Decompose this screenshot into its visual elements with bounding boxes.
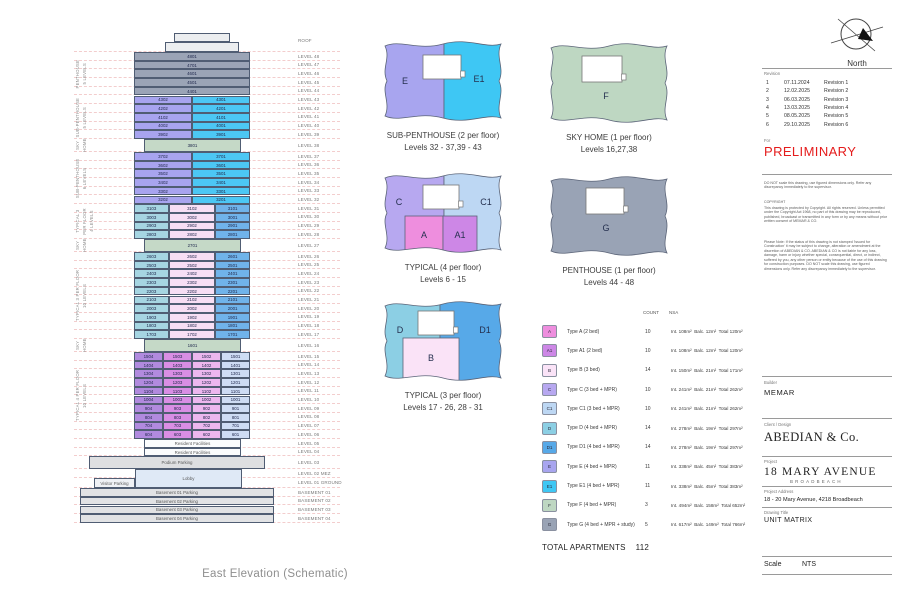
level-label: LEVEL 17: [298, 332, 319, 337]
unit-box: 3003: [134, 213, 169, 222]
section-label-line: 6 LEVELS: [83, 152, 88, 204]
unit-box: 1204: [134, 378, 163, 387]
plan-caption: PENTHOUSE (1 per floor) Levels 44 - 48: [534, 265, 684, 288]
legend-header-nsa: NSA: [669, 310, 678, 315]
level-label: LEVEL 13: [298, 371, 319, 376]
legend-swatch: B: [542, 364, 557, 377]
elevation-row: LEVEL 3232023201: [72, 196, 344, 205]
legend-swatch: C1: [542, 402, 557, 415]
elevation-row: LEVEL 23230323022301: [72, 278, 344, 287]
unit-box: 3501: [192, 169, 250, 178]
section-label-line: 10 LEVELS: [83, 352, 88, 439]
elevation-row: LEVEL 06604603602601: [72, 430, 344, 439]
elevation-row: LEVEL 121204120312021201: [72, 378, 344, 387]
level-label: LEVEL 46: [298, 71, 319, 76]
plan-levels: Levels 32 - 37,39 - 43: [368, 142, 518, 154]
unit-box: 1702: [169, 330, 215, 339]
unit-box: 803: [163, 413, 192, 422]
unit-box: 2103: [134, 296, 169, 305]
unit-type-legend: COUNT NSA AType A (2 bed)10Int. 108m² Ba…: [542, 310, 764, 534]
legend-type-label: Type D (4 bed + MPR): [567, 425, 645, 431]
level-label: LEVEL 31: [298, 206, 319, 211]
elevation-row: LEVEL 161601: [72, 339, 344, 352]
elevation-row: LEVEL 19190319021901: [72, 313, 344, 322]
section-label-line: 5 LEVELS: [83, 52, 88, 96]
section-label-line: SUB-PENTHOUSE: [76, 152, 81, 204]
elevation-row: LEVEL 07704703702701: [72, 422, 344, 431]
level-label: LEVEL 11: [298, 388, 319, 393]
unit-box: 1104: [134, 387, 163, 396]
level-label: LEVEL 36: [298, 162, 319, 167]
unit-box: 2402: [169, 269, 215, 278]
revision-number: 6: [766, 122, 784, 128]
legend-swatch: D: [542, 422, 557, 435]
unit-box: 3101: [215, 204, 250, 213]
level-label: LEVEL 34: [298, 180, 319, 185]
unit-box: 1901: [215, 313, 250, 322]
unit-box: 1201: [221, 378, 250, 387]
unit-box: 2303: [134, 278, 169, 287]
legend-count: 14: [645, 367, 671, 373]
section-label-line: SUB-PENTHOUSE: [76, 96, 81, 140]
elevation-row: LEVEL 3737023701: [72, 152, 344, 161]
level-label: LEVEL 20: [298, 306, 319, 311]
address-label: Project Address: [764, 489, 793, 494]
north-arrow-icon: [828, 14, 886, 56]
legend-nsa: Int. 108m² Balc. 12m² Total 120m²: [671, 348, 743, 353]
scale-label: Scale: [764, 561, 782, 568]
level-label: LEVEL 10: [298, 397, 319, 402]
unit-box: 2603: [134, 252, 169, 261]
section-label-line: SKY: [76, 239, 81, 252]
legend-swatch: G: [542, 518, 557, 531]
legend-count: 11: [645, 464, 671, 470]
note-text: Please Note: If the status of this drawi…: [764, 240, 888, 271]
revision-date: 29.10.2025: [784, 122, 824, 128]
level-label: LEVEL 26: [298, 254, 319, 259]
revision-header: Revision: [764, 71, 780, 76]
unit-box: 3901: [192, 130, 250, 139]
level-label: BASEMENT 04: [298, 516, 331, 521]
level-label: LEVEL 41: [298, 114, 319, 119]
unit-box: Resident Facilities: [144, 448, 241, 457]
unit-box: 802: [192, 413, 221, 422]
legend-row: BType B (3 bed)14Int. 150m² Balc. 21m² T…: [542, 361, 764, 380]
revision-date: 12.02.2025: [784, 88, 824, 94]
revision-row: 212.02.2025Revision 2: [766, 87, 890, 95]
client-value: ABEDIAN & Co.: [764, 430, 859, 445]
unit-box: Basement 02 Parking: [80, 497, 274, 506]
plan-caption: SKY HOME (1 per floor) Levels 16,27,38: [534, 132, 684, 155]
elevation-row: LEVEL 151504150315021501: [72, 352, 344, 361]
unit-box: 3902: [134, 130, 192, 139]
revision-row: 306.03.2025Revision 3: [766, 96, 890, 104]
elevation-row: LEVEL 3636023601: [72, 161, 344, 170]
section-label-line: SKY: [76, 139, 81, 152]
legend-type-label: Type E1 (4 bed + MPR): [567, 483, 645, 489]
core-rect: [418, 311, 454, 335]
legend-type-label: Type F (4 bed + MPR): [567, 502, 645, 508]
section-label-line: HOME: [83, 239, 88, 252]
revision-label: Revision 2: [824, 88, 848, 94]
unit-box: 3401: [192, 178, 250, 187]
elevation-row: LEVEL 20200320022001: [72, 304, 344, 313]
unit-box: 2302: [169, 278, 215, 287]
legend-type-label: Type E (4 bed + MPR): [567, 464, 645, 470]
unit-box: 3202: [134, 196, 192, 205]
elevation-row: LEVEL 3939023901: [72, 130, 344, 139]
level-label: LEVEL 27: [298, 243, 319, 248]
core-rect: [586, 188, 624, 214]
unit-box: 1003: [163, 396, 192, 405]
total-apartments: TOTAL APARTMENTS112: [542, 543, 659, 552]
revision-date: 06.03.2025: [784, 97, 824, 103]
legend-type-label: Type A1 (2 bed): [567, 348, 645, 354]
plan-caption: TYPICAL (4 per floor) Levels 6 - 15: [368, 262, 518, 285]
elevation-row: LEVEL 454501: [72, 78, 344, 87]
unit-box: 604: [134, 430, 163, 439]
elevation-row: ROOF: [72, 30, 344, 52]
plan-levels: Levels 16,27,38: [534, 144, 684, 156]
elevation-caption: East Elevation (Schematic): [190, 568, 360, 580]
level-label: LEVEL 42: [298, 106, 319, 111]
unit-box: Lobby: [135, 469, 242, 487]
plan-caption: SUB-PENTHOUSE (2 per floor) Levels 32 - …: [368, 130, 518, 153]
level-label: LEVEL 29: [298, 223, 319, 228]
plan-caption: TYPICAL (3 per floor) Levels 17 - 26, 28…: [368, 390, 518, 413]
plan-region-label: D1: [479, 325, 491, 335]
drawing-title-label: Drawing Title: [764, 510, 788, 515]
legend-header: COUNT NSA: [542, 310, 764, 315]
revision-number: 4: [766, 105, 784, 111]
divider: [762, 556, 892, 557]
level-label: LEVEL 48: [298, 54, 319, 59]
section-label-line: 10 LEVELS: [83, 252, 88, 339]
unit-box: 1504: [134, 352, 163, 361]
level-label: LEVEL 44: [298, 88, 319, 93]
unit-box: 2901: [215, 222, 250, 231]
level-label: LEVEL 09: [298, 406, 319, 411]
level-label: BASEMENT 01: [298, 490, 331, 495]
legend-swatch: F: [542, 499, 557, 512]
section-label-line: 4 LEVELS: [90, 204, 95, 239]
elevation-row: BASEMENT 04Basement 04 Parking: [72, 514, 344, 523]
section-label-line: HOME: [83, 139, 88, 152]
unit-box: 1103: [163, 387, 192, 396]
level-label: LEVEL 35: [298, 171, 319, 176]
revision-date: 13.03.2025: [784, 105, 824, 111]
core-rect: [423, 55, 461, 79]
unit-box: 1601: [144, 339, 241, 352]
level-label: LEVEL 25: [298, 262, 319, 267]
level-label: LEVEL 43: [298, 97, 319, 102]
note-text: DO NOT scale this drawing, use figured d…: [764, 181, 888, 190]
elevation-row: LEVEL 101004100310021001: [72, 396, 344, 405]
legend-nsa: Int. 150m² Balc. 21m² Total 171m²: [671, 368, 743, 373]
level-label: LEVEL 39: [298, 132, 319, 137]
unit-box: [174, 33, 230, 42]
section-label-line: TYPICAL 3 PER FLOOR: [76, 252, 81, 339]
legend-nsa: Int. 338m² Balc. 45m² Total 383m²: [671, 464, 743, 469]
plan-title: SUB-PENTHOUSE (2 per floor): [368, 130, 518, 142]
legend-count: 11: [645, 483, 671, 489]
legend-nsa: Int. 278m² Balc. 19m² Total 297m²: [671, 445, 743, 450]
level-label: LEVEL 14: [298, 362, 319, 367]
plan-levels: Levels 6 - 15: [368, 274, 518, 286]
unit-box: 3402: [134, 178, 192, 187]
elevation-section-label: SKYHOME: [76, 339, 88, 352]
revision-table: 107.11.2024Revision 1212.02.2025Revision…: [766, 79, 890, 129]
plan-region-label: G: [602, 223, 609, 233]
unit-box: 904: [134, 404, 163, 413]
legend-count: 14: [645, 425, 671, 431]
level-label: LEVEL 05: [298, 441, 319, 446]
plan-region-label: B: [428, 353, 434, 363]
elevation-row: LEVEL 31310331023101: [72, 204, 344, 213]
unit-box: 4202: [134, 104, 192, 113]
legend-type-label: Type A (2 bed): [567, 329, 645, 335]
unit-box: 3801: [144, 139, 241, 152]
plan-levels: Levels 44 - 48: [534, 277, 684, 289]
unit-box: 1403: [163, 361, 192, 370]
level-label: LEVEL 23: [298, 280, 319, 285]
elevation-section-label: SKYHOME: [76, 139, 88, 152]
elevation-row: LEVEL 09904903902901: [72, 404, 344, 413]
legend-type-label: Type D1 (4 bed + MPR): [567, 444, 645, 450]
unit-box: 801: [221, 413, 250, 422]
elevation-row: LEVEL 21210321022101: [72, 296, 344, 305]
elevation-row: LEVEL 02 MEZLobby: [72, 469, 344, 478]
east-elevation-diagram: ROOFLEVEL 484801LEVEL 474701LEVEL 464601…: [72, 30, 348, 590]
legend-swatch: E1: [542, 480, 557, 493]
unit-box: 1203: [163, 378, 192, 387]
legend-row: E1Type E1 (4 bed + MPR)11Int. 338m² Balc…: [542, 476, 764, 495]
unit-box: 2801: [215, 230, 250, 239]
revision-label: Revision 6: [824, 122, 848, 128]
unit-box: 4601: [134, 69, 250, 78]
plan-penthouse-shape: G: [544, 173, 674, 259]
legend-type-label: Type C (3 bed + MPR): [567, 387, 645, 393]
legend-swatch: A: [542, 325, 557, 338]
unit-box: 3302: [134, 187, 192, 196]
elevation-row: LEVEL 25250325022501: [72, 261, 344, 270]
address-value: 18 - 20 Mary Avenue, 4218 Broadbeach: [764, 497, 863, 503]
divider: [762, 486, 892, 487]
revision-row: 107.11.2024Revision 1: [766, 79, 890, 87]
elevation-row: BASEMENT 02Basement 02 Parking: [72, 497, 344, 506]
unit-box: 2601: [215, 252, 250, 261]
elevation-row: LEVEL 3434023401: [72, 178, 344, 187]
elevation-section-label: SUB-PENTHOUSE6 LEVELS: [76, 152, 88, 204]
level-label: LEVEL 03: [298, 460, 319, 465]
unit-box: 1002: [192, 396, 221, 405]
level-label: LEVEL 01 GROUND: [298, 480, 342, 485]
plan-typical-3-shape: D D1 B: [378, 298, 508, 384]
level-label: LEVEL 24: [298, 271, 319, 276]
north-arrow: North: [826, 14, 888, 68]
elevation-row: LEVEL 4040024001: [72, 122, 344, 131]
legend-swatch: C: [542, 383, 557, 396]
unit-box: 4002: [134, 122, 192, 131]
section-label-line: TYPICAL 3: [76, 204, 81, 239]
unit-box: 2101: [215, 296, 250, 305]
legend-swatch: A1: [542, 344, 557, 357]
legend-row: FType F (4 bed + MPR)3Int. 494m² Balc. 1…: [542, 496, 764, 515]
revision-number: 1: [766, 80, 784, 86]
region-E: [378, 38, 444, 124]
north-label: North: [826, 59, 888, 68]
total-apartments-value: 112: [636, 543, 649, 552]
unit-box: 903: [163, 404, 192, 413]
legend-row: AType A (2 bed)10Int. 108m² Balc. 12m² T…: [542, 322, 764, 341]
unit-box: Basement 01 Parking: [80, 488, 274, 497]
elevation-section-label: SKYHOME: [76, 239, 88, 252]
unit-box: 1302: [192, 369, 221, 378]
unit-box: 2003: [134, 304, 169, 313]
unit-box: 603: [163, 430, 192, 439]
builder-value: MEMAR: [764, 388, 795, 397]
unit-box: 2802: [169, 230, 215, 239]
legend-count: 3: [645, 502, 671, 508]
plan-typical-4: C C1 A A1 TYPICAL (4 per floor) Levels 6…: [368, 170, 518, 285]
elevation-row: LEVEL 484801: [72, 52, 344, 61]
unit-box: 4401: [134, 87, 250, 96]
elevation-row: LEVEL 131304130313021301: [72, 369, 344, 378]
level-label: BASEMENT 02: [298, 498, 331, 503]
revision-number: 2: [766, 88, 784, 94]
legend-nsa: Int. 617m² Balc. 149m² Total 766m²: [671, 522, 745, 527]
legend-swatch: D1: [542, 441, 557, 454]
level-label: LEVEL 06: [298, 432, 319, 437]
elevation-row: LEVEL 22220322022201: [72, 287, 344, 296]
plan-sub-penthouse-shape: E E1: [378, 38, 508, 124]
scale-value: NTS: [802, 561, 816, 568]
elevation-row: LEVEL 272701: [72, 239, 344, 252]
unit-box: 601: [221, 430, 250, 439]
revision-row: 508.05.2025Revision 5: [766, 112, 890, 120]
divider: [762, 507, 892, 508]
elevation-row: LEVEL 30300330023001: [72, 213, 344, 222]
region-F: [544, 40, 674, 126]
section-label-line: 5 LEVELS: [83, 96, 88, 140]
unit-box: 2201: [215, 287, 250, 296]
project-label: Project: [764, 459, 777, 464]
client-label: Client / Design: [764, 422, 791, 427]
legend-row: C1Type C1 (3 bed + MPR)10Int. 241m² Balc…: [542, 399, 764, 418]
level-label: LEVEL 37: [298, 154, 319, 159]
unit-box: 701: [221, 422, 250, 431]
elevation-row: LEVEL 383801: [72, 139, 344, 152]
unit-box: 2001: [215, 304, 250, 313]
unit-box: Basement 04 Parking: [80, 514, 274, 523]
elevation-row: LEVEL 03Podium Parking: [72, 456, 344, 469]
elevation-section-label: TYPICAL 3PER FLOOR4 LEVELS: [76, 204, 95, 239]
plan-region-label: A: [421, 230, 427, 240]
plan-region-label: E1: [473, 74, 484, 84]
unit-box: 4201: [192, 104, 250, 113]
unit-box: [165, 42, 239, 52]
unit-box: 1401: [221, 361, 250, 370]
level-label: LEVEL 45: [298, 80, 319, 85]
divider: [762, 376, 892, 377]
level-label: LEVEL 22: [298, 288, 319, 293]
unit-box: 2501: [215, 261, 250, 270]
level-label: LEVEL 12: [298, 380, 319, 385]
plan-region-label: C1: [480, 197, 492, 207]
legend-rows: AType A (2 bed)10Int. 108m² Balc. 12m² T…: [542, 322, 764, 534]
divider: [762, 574, 892, 575]
unit-box: 1502: [192, 352, 221, 361]
revision-label: Revision 4: [824, 105, 848, 111]
revision-label: Revision 5: [824, 113, 848, 119]
elevation-row: LEVEL 04Resident Facilities: [72, 448, 344, 457]
unit-box: 1001: [221, 396, 250, 405]
legend-count: 10: [645, 406, 671, 412]
unit-box: 1304: [134, 369, 163, 378]
core-tab: [624, 206, 629, 212]
unit-box: 4501: [134, 78, 250, 87]
unit-box: 3102: [169, 204, 215, 213]
unit-box: 3701: [192, 152, 250, 161]
level-label: LEVEL 30: [298, 214, 319, 219]
unit-box: 1902: [169, 313, 215, 322]
level-label: LEVEL 32: [298, 197, 319, 202]
unit-box: 2502: [169, 261, 215, 270]
unit-box: 1801: [215, 322, 250, 331]
level-label: LEVEL 15: [298, 354, 319, 359]
plan-sky-home: F SKY HOME (1 per floor) Levels 16,27,38: [534, 40, 684, 155]
legend-type-label: Type C1 (3 bed + MPR): [567, 406, 645, 412]
elevation-row: BASEMENT 03Basement 03 Parking: [72, 506, 344, 515]
level-label: LEVEL 21: [298, 297, 319, 302]
unit-box: 3602: [134, 161, 192, 170]
legend-header-count: COUNT: [643, 310, 669, 315]
unit-box: Podium Parking: [89, 456, 265, 469]
unit-box: 2102: [169, 296, 215, 305]
total-apartments-label: TOTAL APARTMENTS: [542, 543, 626, 552]
revision-row: 629.10.2025Revision 6: [766, 120, 890, 128]
revision-date: 08.05.2025: [784, 113, 824, 119]
divider: [762, 174, 892, 175]
title-block: North Revision 107.11.2024Revision 1212.…: [760, 14, 894, 594]
core-rect: [423, 185, 459, 209]
unit-box: 3702: [134, 152, 192, 161]
unit-box: 3103: [134, 204, 169, 213]
legend-count: 5: [645, 522, 671, 528]
unit-box: 2902: [169, 222, 215, 231]
unit-box: 2903: [134, 222, 169, 231]
legend-row: EType E (4 bed + MPR)11Int. 338m² Balc. …: [542, 457, 764, 476]
section-label-line: TYPICAL 4 PER FLOOR: [76, 352, 81, 439]
core-tab: [622, 74, 627, 80]
legend-row: CType C (3 bed + MPR)10Int. 241m² Balc. …: [542, 380, 764, 399]
elevation-row: LEVEL 18180318021801: [72, 322, 344, 331]
unit-box: 901: [221, 404, 250, 413]
unit-box: Visitor Parking: [94, 478, 135, 488]
revision-number: 5: [766, 113, 784, 119]
plan-sky-home-shape: F: [544, 40, 674, 126]
core-tab: [461, 71, 466, 77]
elevation-section-label: TYPICAL 4 PER FLOOR10 LEVELS: [76, 352, 88, 439]
level-label: LEVEL 08: [298, 414, 319, 419]
legend-count: 14: [645, 444, 671, 450]
unit-box: 2002: [169, 304, 215, 313]
project-subtitle: BROADBEACH: [790, 479, 843, 484]
section-label-line: HOME: [83, 339, 88, 352]
elevation-row: LEVEL 444401: [72, 87, 344, 96]
unit-box: 4701: [134, 61, 250, 70]
legend-swatch: E: [542, 460, 557, 473]
